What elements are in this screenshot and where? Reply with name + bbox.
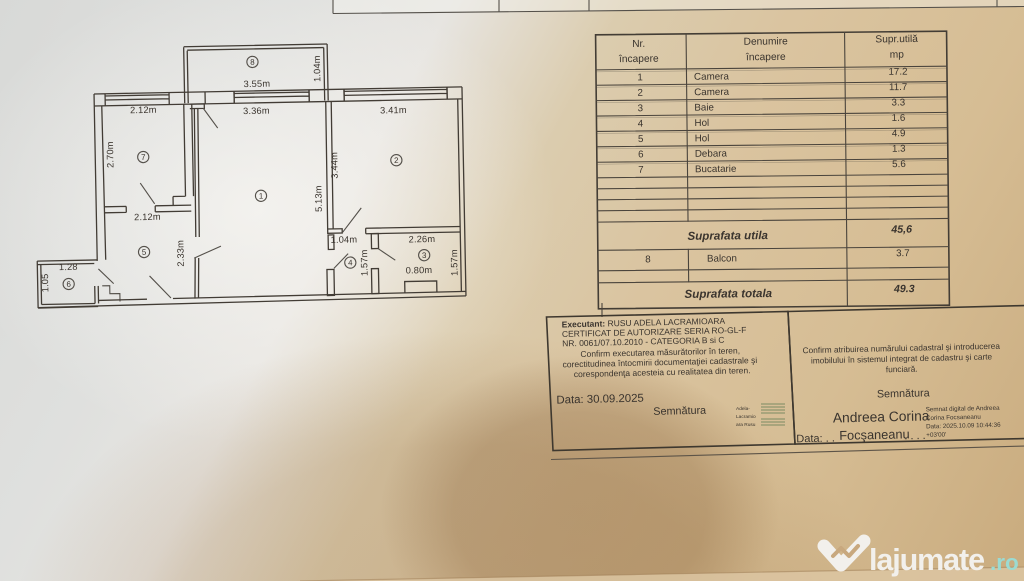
svg-text:7: 7 [638,165,644,176]
svg-text:3.36m: 3.36m [243,106,270,117]
svg-text:+03'00': +03'00' [926,431,946,438]
svg-text:6: 6 [638,149,644,160]
svg-text:8: 8 [250,58,255,67]
svg-text:4: 4 [348,258,353,267]
svg-text:Andreea Corina: Andreea Corina [833,408,930,425]
svg-text:.ro: .ro [990,550,1019,575]
svg-text:Camera: Camera [694,87,730,98]
svg-text:2.12m: 2.12m [130,105,157,116]
svg-text:1: 1 [259,192,264,201]
svg-text:1.3: 1.3 [892,144,906,155]
svg-text:ara Rusu: ara Rusu [736,422,756,428]
svg-text:încapere: încapere [618,54,659,65]
svg-text:17.2: 17.2 [888,67,907,78]
svg-text:6: 6 [66,280,71,289]
svg-text:3.41m: 3.41m [380,105,407,116]
svg-text:mp: mp [890,50,905,61]
svg-text:Hol: Hol [695,133,710,144]
svg-text:1.6: 1.6 [892,113,906,124]
svg-text:Semnat digital de Andreea: Semnat digital de Andreea [926,405,1001,414]
svg-text:1: 1 [637,72,643,83]
svg-text:3: 3 [638,103,644,114]
svg-text:Bucatarie: Bucatarie [695,164,737,175]
svg-text:3.7: 3.7 [896,248,910,259]
svg-text:1.04m: 1.04m [330,234,357,245]
svg-text:. . . .: . . . . [904,430,926,442]
svg-text:2.26m: 2.26m [408,234,435,245]
svg-text:45,6: 45,6 [890,224,912,236]
svg-text:Semnătura: Semnătura [653,405,706,418]
svg-text:încapere: încapere [745,52,786,63]
svg-text:Adela-: Adela- [736,406,750,412]
svg-text:2.33m: 2.33m [175,240,186,267]
svg-text:5: 5 [638,134,644,145]
svg-text:Semnătura: Semnătura [877,387,930,400]
svg-text:7: 7 [141,153,146,162]
svg-text:lajumate: lajumate [869,543,984,577]
svg-text:1.28: 1.28 [59,262,78,272]
svg-text:Data: 30.09.2025: Data: 30.09.2025 [556,393,644,407]
svg-text:Baie: Baie [694,102,714,113]
svg-text:3.3: 3.3 [891,97,905,108]
svg-text:funciară.: funciară. [886,364,918,375]
svg-text:Hol: Hol [694,118,709,129]
svg-text:1.05: 1.05 [40,274,50,293]
svg-text:Camera: Camera [694,71,730,82]
svg-text:0.80m: 0.80m [406,265,433,276]
svg-text:Corina Focsaneanu: Corina Focsaneanu [926,414,982,422]
svg-text:Data: 2025.10.09 10:44:36: Data: 2025.10.09 10:44:36 [926,422,1001,431]
svg-text:1.57m: 1.57m [359,249,370,276]
svg-text:5.6: 5.6 [892,159,906,170]
svg-text:Nr.: Nr. [632,39,645,50]
svg-text:4: 4 [638,119,644,130]
svg-text:3.44m: 3.44m [329,152,340,179]
svg-text:2.12m: 2.12m [134,212,161,223]
svg-text:2: 2 [394,156,399,165]
svg-text:Focşaneanu: Focşaneanu [839,426,910,443]
svg-text:2: 2 [637,88,643,99]
svg-text:3.55m: 3.55m [243,79,270,90]
svg-text:1.57m: 1.57m [449,249,460,276]
svg-text:1.04m: 1.04m [312,55,323,82]
svg-text:Data: . .: Data: . . [796,432,835,445]
svg-text:49.3: 49.3 [893,283,915,295]
svg-text:Lacramio: Lacramio [736,414,756,420]
svg-text:Suprafata totala: Suprafata totala [684,287,772,301]
svg-text:3: 3 [422,251,427,260]
svg-text:Suprafata utila: Suprafata utila [687,229,768,243]
svg-text:Supr.utilă: Supr.utilă [875,34,918,45]
svg-text:Debara: Debara [695,148,728,159]
svg-text:Denumire: Denumire [744,36,789,47]
svg-text:4.9: 4.9 [892,128,906,139]
svg-text:5: 5 [142,248,147,257]
svg-text:5.13m: 5.13m [313,185,324,212]
svg-text:8: 8 [645,254,651,265]
svg-text:2.70m: 2.70m [105,141,116,168]
svg-text:Balcon: Balcon [707,253,737,264]
svg-text:11.7: 11.7 [889,82,907,93]
